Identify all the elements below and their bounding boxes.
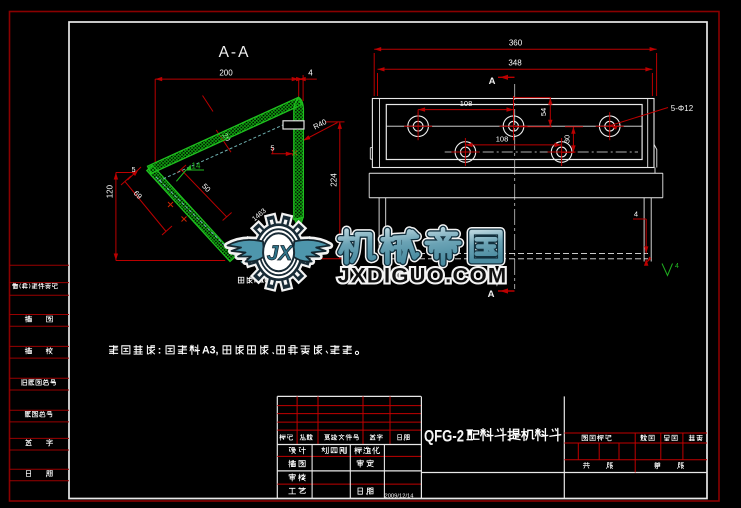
svg-text:2009/12/14: 2009/12/14	[384, 494, 414, 500]
svg-text:360: 360	[509, 39, 523, 48]
svg-text:4: 4	[308, 69, 313, 78]
svg-text:A: A	[488, 289, 495, 300]
svg-text:200: 200	[219, 69, 233, 78]
svg-text:108: 108	[460, 99, 473, 108]
svg-text::: :	[158, 344, 162, 356]
svg-text:224: 224	[330, 173, 339, 187]
svg-text:348: 348	[508, 59, 522, 68]
svg-text:QFG-2: QFG-2	[424, 427, 464, 445]
svg-text:A-A: A-A	[219, 44, 251, 61]
svg-text:5-Φ12: 5-Φ12	[671, 104, 694, 113]
svg-text:A: A	[489, 76, 496, 87]
svg-text:4: 4	[675, 263, 679, 270]
svg-text:108: 108	[496, 134, 509, 143]
svg-text:A3,: A3,	[202, 344, 219, 356]
svg-text:54: 54	[539, 108, 548, 116]
svg-text:JX: JX	[267, 242, 295, 265]
svg-text:30: 30	[563, 135, 572, 143]
svg-text:14: 14	[192, 162, 201, 171]
svg-text:5: 5	[132, 167, 136, 174]
svg-text:5: 5	[270, 144, 274, 153]
svg-text:120: 120	[105, 184, 114, 198]
svg-text:JXDIGUO.COM: JXDIGUO.COM	[338, 265, 508, 288]
svg-text:4: 4	[634, 210, 638, 219]
